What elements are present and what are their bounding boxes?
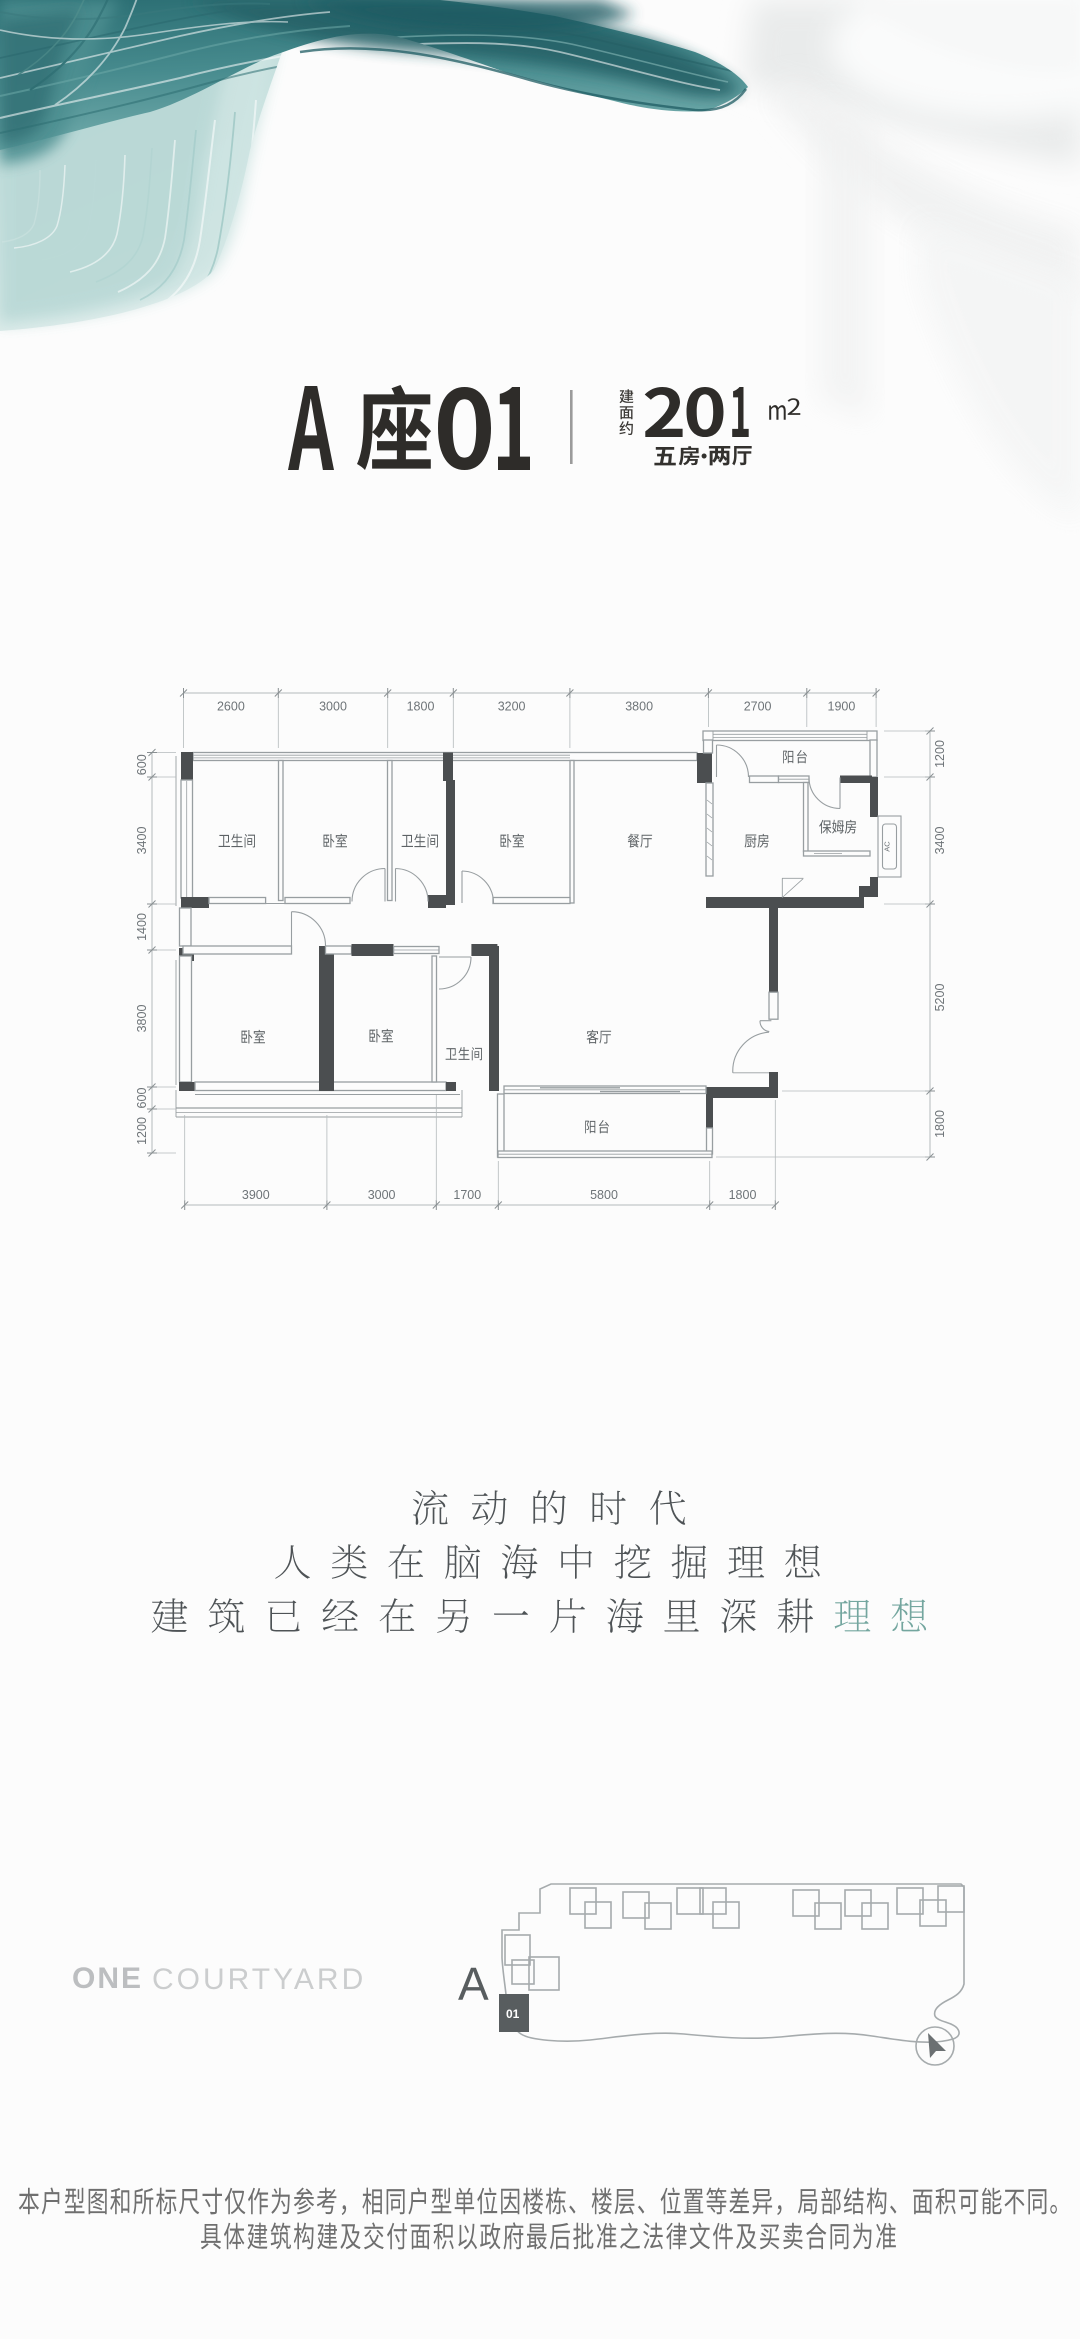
svg-text:3800: 3800 — [625, 700, 653, 714]
svg-text:1700: 1700 — [453, 1188, 481, 1202]
svg-text:600: 600 — [135, 754, 149, 775]
svg-text:A: A — [458, 1958, 489, 2010]
svg-text:1800: 1800 — [729, 1188, 757, 1202]
svg-text:5800: 5800 — [590, 1188, 618, 1202]
svg-text:01: 01 — [506, 2007, 520, 2021]
svg-text:5200: 5200 — [933, 984, 947, 1012]
svg-text:1800: 1800 — [407, 700, 435, 714]
svg-text:COURTYARD: COURTYARD — [152, 1963, 366, 1996]
svg-text:1900: 1900 — [828, 700, 856, 714]
svg-text:3000: 3000 — [319, 700, 347, 714]
svg-text:2700: 2700 — [744, 700, 772, 714]
svg-text:600: 600 — [135, 1088, 149, 1109]
svg-text:AC: AC — [883, 841, 892, 852]
svg-text:2600: 2600 — [217, 700, 245, 714]
svg-text:3000: 3000 — [368, 1188, 396, 1202]
svg-text:ONE: ONE — [72, 1962, 143, 1995]
svg-text:1200: 1200 — [933, 740, 947, 768]
svg-text:3400: 3400 — [933, 827, 947, 855]
svg-text:3200: 3200 — [498, 700, 526, 714]
svg-text:3800: 3800 — [135, 1005, 149, 1033]
svg-text:1200: 1200 — [135, 1117, 149, 1145]
svg-text:1800: 1800 — [933, 1110, 947, 1138]
svg-text:3400: 3400 — [135, 827, 149, 855]
svg-text:3900: 3900 — [242, 1188, 270, 1202]
svg-text:1400: 1400 — [135, 913, 149, 941]
